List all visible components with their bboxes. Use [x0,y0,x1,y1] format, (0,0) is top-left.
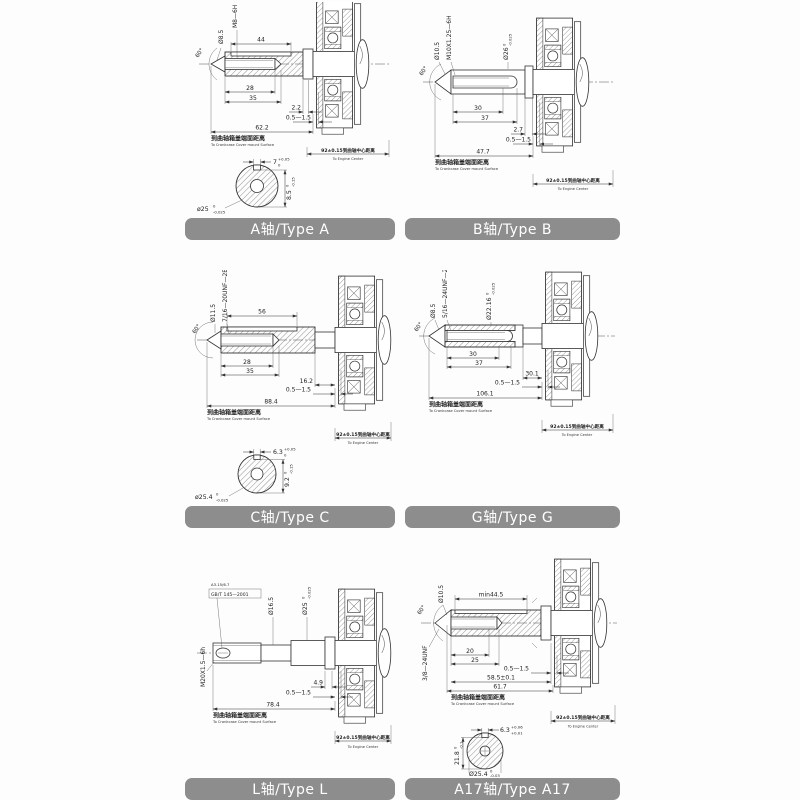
type-a17-label-bar: A17轴/Type A17 [405,778,620,800]
dim-text: 58.5±0.1 [487,675,515,682]
dim-keyway-length: 56 [227,309,297,327]
shaft-types-sheet: M8—6H Ø8.5 60° 44 28 [0,0,800,800]
sec-keyway-width: 6.3 [500,727,510,734]
panel-type-a17: Ø10.5 3/8—24UNF 60° min44.5 20 [405,555,620,800]
type-a-label-bar: A轴/Type A [185,218,395,240]
cover-distance-en: To Crankcase Cover mount Surface [450,702,515,706]
type-b-label: B轴/Type B [473,219,552,239]
cover-distance-cn: 到曲轴箱盖端面距离 [429,401,483,409]
thread-label: 7/16—20UNF—2B [222,270,229,322]
sec-keyway-height: 8.5 [286,190,293,200]
sec-diameter: ø25.4 [195,494,213,501]
type-a17-label: A17轴/Type A17 [454,779,571,799]
thread-label: M8—6H [232,5,239,28]
tip-dia-label: Ø10.5 [438,585,445,603]
type-b-label-bar: B轴/Type B [405,218,620,240]
sec-keyway-height-sub: -0.1 [459,741,464,749]
shaft-dia-sup: 0 [485,292,490,295]
panel-type-b: Ø10.5 M10X1.25—6H Ø26 0 -0.025 60° [405,2,620,240]
sec-diameter: Ø25.4 [469,770,488,777]
dim-keyway-length: min44.5 [455,592,527,610]
thread-label: M10X1.25—6H [446,15,453,60]
engine-center-dim: 92±0.15到曲轴中心距离 To Engine Center [533,170,613,191]
dim-text: 78.4 [266,702,280,709]
dim-text: 30.1 [525,371,539,378]
sec-keyway-height-sub: -0.15 [289,464,294,474]
engine-center-dim: 92±0.15到曲轴中心距离 To Engine Center [335,725,391,749]
shaft-dia: Ø26 [502,47,510,60]
type-a-label: A轴/Type A [251,219,330,239]
mid-dia-callout: Ø16.5 [268,597,275,645]
dim-text: 37 [475,360,483,367]
engine-center-text: 92±0.15到曲轴中心距离 [550,423,604,430]
shaft-dia-sup: 0 [502,43,507,46]
shaft-dia-callout: Ø22.16 0 -0.025 [485,282,496,325]
dim-text: 0.5—1.5 [506,137,531,144]
engine-center-en: To Engine Center [347,745,379,749]
dim-text: 61.7 [493,684,507,691]
section-view: 6.3 +0.06 +0.01 21.8 0 -0.1 Ø25.4 0 -0.0… [453,725,524,778]
shaft-dia: Ø22.16 [485,297,493,320]
shaft-profile [211,49,313,79]
dim-text: 20 [466,648,474,655]
mid-dia-label: Ø16.5 [268,597,275,615]
dim-text: 106.1 [476,391,493,398]
engine-center-text: 92±0.15到曲轴中心距离 [556,714,610,721]
angle-label: 60° [417,604,428,616]
thread-callout: 7/16—20UNF—2B [222,270,229,334]
thread-label: 5/16—24UNF—2B [442,270,449,318]
sec-keyway-height: 9.2 [284,477,291,487]
type-a17-drawing: Ø10.5 3/8—24UNF 60° min44.5 20 [405,555,620,777]
type-l-label: L轴/Type L [252,779,327,799]
shaft-profile [435,66,533,98]
thread-callout: M8—6H [232,5,239,57]
shaft-profile [207,327,335,353]
sec-keyway-height-sup: 0 [453,746,458,749]
type-l-label-bar: L轴/Type L [185,778,395,800]
panel-type-g: Ø8.5 5/16—24UNF—2B Ø22.16 0 -0.025 60° [405,270,620,528]
shaft-profile [429,325,542,347]
section-view: 7 +0.05 0 8.5 0 -0.15 ø25 0 -0.025 [197,157,296,215]
engine-center-en: To Engine Center [557,187,589,191]
tip-dia-label: Ø8.5 [430,304,437,318]
cover-distance-en: To Crankcase Cover mount Surface [428,409,493,413]
sec-diameter-sub: -0.03 [490,773,500,777]
dim-text: 35 [249,95,257,102]
shaft-dia-sup: 0 [301,596,306,599]
engine-center-en: To Engine Center [332,157,364,161]
engine-center-text: 92±0.15到曲轴中心距离 [336,734,390,741]
center-hole-callout: A3.15/6.7 GB/T 145—2001 [209,582,261,648]
sec-keyway-width-sup: +0.05 [284,447,296,452]
dim-text: 0.5—1.5 [495,380,520,387]
cover-distance-cn: 到曲轴箱盖端面距离 [435,159,489,167]
angle-label: 60° [195,47,206,59]
sec-diameter-sup: 0 [213,204,216,209]
tip-dia-callout: Ø10.5 [434,42,445,74]
crankcase-section [542,272,598,406]
dim-text: 35 [246,368,254,375]
tip-dia-callout: Ø8.5 [430,304,439,330]
dim-text: min44.5 [479,592,504,599]
tip-dia-label: Ø10.5 [434,42,441,60]
dim-text: 25 [471,657,479,664]
shaft-dia: Ø25 [301,602,309,615]
shaft-dia-sub: -0.025 [491,282,496,295]
thread-callout: 3/8—24UNF [422,629,439,681]
sec-keyway-height-sub: -0.15 [291,177,296,187]
sec-keyway-height: 21.8 [454,751,461,765]
tip-dia-callout: Ø11.5 [210,304,217,333]
dim-text: 2.7 [513,127,523,134]
type-a-drawing: M8—6H Ø8.5 60° 44 28 [185,2,395,216]
dim-text: 44 [257,37,265,44]
dim-text: 16.2 [300,378,314,385]
type-l-drawing: A3.15/6.7 GB/T 145—2001 M20X1.5—6h Ø16.5… [185,555,395,777]
type-b-drawing: Ø10.5 M10X1.25—6H Ø26 0 -0.025 60° [405,2,620,216]
panel-type-l: A3.15/6.7 GB/T 145—2001 M20X1.5—6h Ø16.5… [185,555,395,800]
thread-label: 3/8—24UNF [422,645,429,681]
dim-text: 88.4 [264,399,278,406]
thread-callout: 5/16—24UNF—2B [442,270,451,331]
dim-text: 47.7 [476,149,490,156]
sec-diameter: ø25 [197,206,209,213]
crankcase-section [335,589,391,723]
type-g-label-bar: G轴/Type G [405,506,620,528]
type-g-label: G轴/Type G [472,507,554,527]
tip-dia-callout: Ø10.5 [438,585,447,615]
section-view: 6.3 +0.05 0 9.2 0 -0.15 ø25.4 0 -0.025 [195,447,296,503]
dim-keyway-length: 44 [231,37,291,52]
shaft-dia-sub: -0.025 [508,33,513,46]
cover-distance-cn: 到曲轴箱盖端面距离 [211,135,265,143]
type-c-label: C轴/Type C [250,507,329,527]
dim-text: 0.5—1.5 [286,387,311,394]
panel-type-c: Ø11.5 7/16—20UNF—2B 60° 56 28 [185,270,395,528]
dim-text: 56 [258,309,266,316]
engine-center-en: To Engine Center [567,725,599,729]
crankcase-section [313,2,369,134]
cover-distance-en: To Crankcase Cover mount Surface [212,720,277,724]
engine-center-text: 92±0.15到曲轴中心距离 [321,147,375,154]
dim-text: 4.9 [313,680,323,687]
dim-text: 62.2 [255,125,269,132]
sec-diameter-sup: 0 [216,492,219,497]
sec-diameter-sub: -0.025 [213,210,226,215]
engine-center-text: 92±0.15到曲轴中心距离 [336,431,390,438]
sec-keyway-width-sub: +0.01 [511,731,523,736]
tip-dia-label: Ø11.5 [210,304,217,322]
cover-distance-cn: 到曲轴箱盖端面距离 [213,712,267,720]
shaft-dia-callout: Ø26 0 -0.025 [502,33,513,69]
center-std-label: GB/T 145—2001 [211,592,249,598]
tip-dia-callout: Ø8.5 [217,30,225,60]
dim-text: 28 [246,85,254,92]
dim-total: 78.4 [213,665,335,711]
type-c-drawing: Ø11.5 7/16—20UNF—2B 60° 56 28 [185,270,395,504]
cover-distance-en: To Crankcase Cover mount Surface [210,143,275,147]
drawing-sheet: { "common": { "cover_cn": "到曲轴箱盖端面距离", "… [0,0,800,800]
shaft-profile [435,598,551,648]
type-c-label-bar: C轴/Type C [185,506,395,528]
panel-type-a: M8—6H Ø8.5 60° 44 28 [185,2,395,240]
dim-text: 30 [474,105,482,112]
dim-text: 37 [481,115,489,122]
cover-distance-en: To Crankcase Cover mount Surface [206,417,271,421]
thread-callout: M10X1.25—6H [446,15,455,75]
sec-keyway-width-sub: 0 [284,453,287,458]
shaft-dia-callout: Ø25 0 -0.025 [301,586,312,640]
crankcase-section [533,18,589,152]
angle-label: 60° [192,323,203,335]
dim-text: 0.5—1.5 [286,690,311,697]
dim-text: 0.5—1.5 [286,115,311,122]
angle-label: 60° [414,321,425,333]
thread-label: M20X1.5—6h [200,647,207,687]
engine-center-dim: 92±0.15到曲轴中心距离 To Engine Center [551,705,615,729]
sec-keyway-width: 6.3 [273,449,283,456]
sec-keyway-width-sup: +0.06 [511,725,523,730]
dim-step: 16.2 [300,349,335,387]
dim-hole-depth: 30 [447,347,499,369]
type-g-drawing: Ø8.5 5/16—24UNF—2B Ø22.16 0 -0.025 60° [405,270,620,504]
crankcase-section [335,276,391,410]
engine-center-en: To Engine Center [561,433,593,437]
dim-step: 30.1 [523,346,542,380]
sec-keyway-width-sup: +0.05 [278,157,290,162]
engine-center-dim: 92±0.15到曲轴中心距离 To Engine Center [542,414,613,437]
engine-center-en: To Engine Center [347,441,379,445]
sec-keyway-width: 7 [273,159,277,166]
angle-label: 60° [419,65,430,77]
sec-keyway-width-sub: 0 [278,163,281,168]
engine-center-text: 92±0.15到曲轴中心距离 [546,177,600,184]
sec-diameter-sub: -0.025 [216,498,229,503]
cover-distance-cn: 到曲轴箱盖端面距离 [451,694,505,702]
dim-text: 2.2 [291,105,301,112]
cover-distance-cn: 到曲轴箱盖端面距离 [207,409,261,417]
dim-text: 0.5—1.5 [504,666,529,673]
center-hole-label: A3.15/6.7 [211,582,230,587]
dim-text: 30 [469,351,477,358]
tip-dia-label: Ø8.5 [218,30,225,44]
dim-text: 28 [243,359,251,366]
engine-center-dim: 92±0.15到曲轴中心距离 To Engine Center [335,422,391,445]
shaft-dia-sub: -0.025 [307,586,312,599]
shaft-profile [213,637,335,669]
engine-center-dim: 92±0.15到曲轴中心距离 To Engine Center [307,140,389,161]
cover-distance-en: To Crankcase Cover mount Surface [434,167,499,171]
